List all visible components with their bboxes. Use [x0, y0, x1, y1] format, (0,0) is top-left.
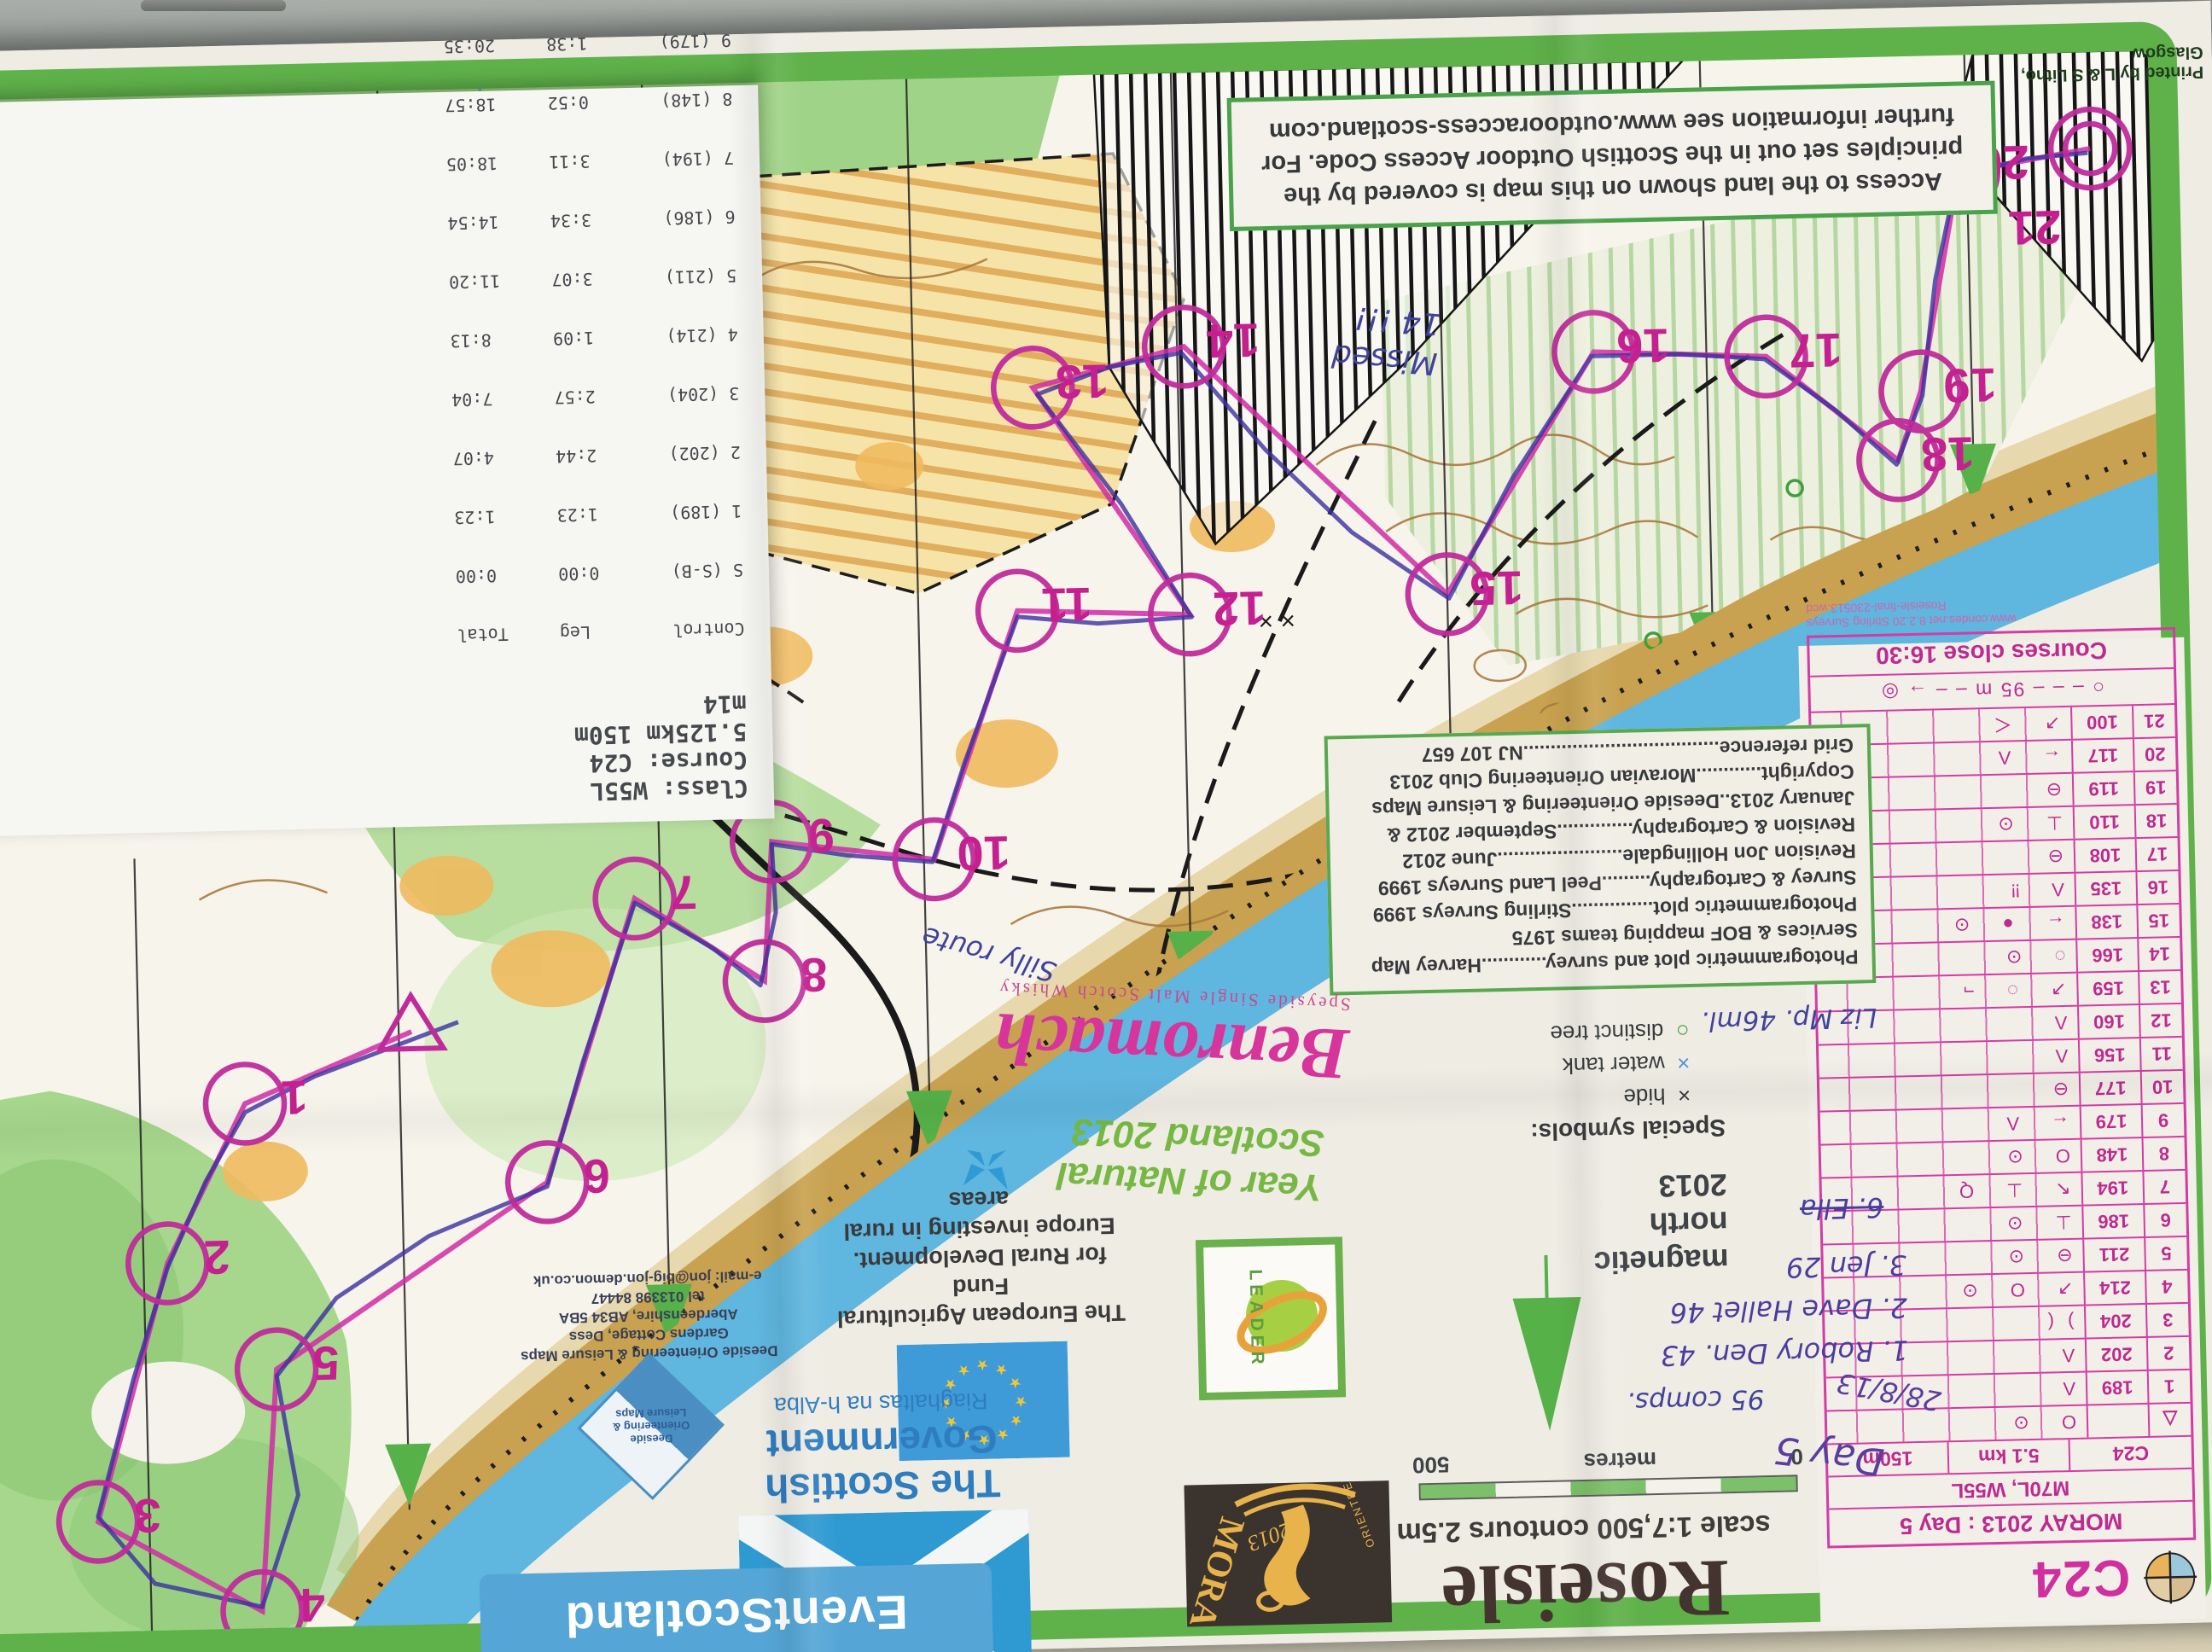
handwritten-ella-note: 6. Ella	[1696, 1179, 1884, 1228]
svg-text:10: 10	[957, 826, 1011, 881]
splits-row: 9 (179) 1:38 20:35	[0, 30, 731, 67]
splits-row: 8 (148) 0:52 18:57	[0, 89, 733, 125]
north-arrow-stem	[1544, 1255, 1548, 1300]
splits-row: 5 (211) 3:07 11:20	[0, 265, 736, 302]
svg-text:16: 16	[1615, 318, 1670, 373]
scale-units: metres	[1583, 1446, 1656, 1475]
hide-icon: ×	[1678, 1083, 1691, 1108]
svg-text:8: 8	[800, 948, 828, 1003]
splits-row: 3 (204) 2:57 7:04	[0, 383, 740, 420]
moray-2013-logo: MORAY 2013 ORIENTEERING	[1184, 1480, 1392, 1626]
results-header: Class: W55L Course: C24 5.125km 150m m14	[0, 689, 748, 819]
course-id: C24	[2070, 1437, 2192, 1470]
natural-scotland-logo: Year of Natural Scotland 2013	[963, 1056, 1328, 1210]
svg-text:1: 1	[281, 1071, 309, 1126]
legend-item: × hide	[1426, 1079, 1726, 1118]
eventscotland-logo: EventScotland	[480, 1563, 993, 1652]
moray-logo-graphic: MORAY 2013 ORIENTEERING	[1184, 1480, 1392, 1626]
eu-fund-line: The European Agricultural Fund	[827, 1269, 1135, 1334]
results-printout: Class: W55L Course: C24 5.125km 150m m14…	[0, 85, 775, 837]
svg-text:5: 5	[312, 1336, 341, 1391]
legend-title: Special symbols:	[1427, 1111, 1726, 1150]
deeside-maps-block: Deeside Orienteering & Leisure Maps Dees…	[510, 1226, 789, 1488]
splits-row: 10 (177) 0:53 21:28	[0, 0, 731, 8]
splits-row: 7 (194) 3:11 18:05	[0, 148, 734, 184]
svg-text:9: 9	[807, 809, 835, 864]
splits-row: 6 (186) 3:34 14:54	[0, 206, 736, 243]
water-tank-icon: ×	[1677, 1050, 1691, 1076]
leader-wordmark: LEADER	[1245, 1269, 1268, 1369]
access-code-box: Access to the land shown on this map is …	[1227, 81, 1998, 231]
svg-text:21: 21	[2007, 201, 2062, 255]
splits-row: S (S-B) 0:00 0:00	[0, 560, 743, 596]
legend-item: × water tank	[1425, 1046, 1725, 1085]
moravian-club-logo-icon	[2144, 1550, 2197, 1604]
svg-text:3: 3	[134, 1489, 162, 1544]
course-length: 5.1 km	[1949, 1440, 2071, 1473]
handwritten-missed-note: Missed 14 !!!	[1240, 247, 1446, 382]
moray-wordmark: MORAY	[1184, 1513, 1251, 1627]
deeside-diamond-text: Deeside Orienteering & Leisure Maps	[601, 1406, 701, 1447]
svg-text:2: 2	[203, 1230, 231, 1285]
start-symbol: △	[2148, 1404, 2192, 1436]
svg-text:15: 15	[1470, 561, 1524, 615]
map-title: Roseisle	[1336, 1544, 1833, 1637]
map-scale-line: scale 1:7,500 contours 2.5m	[1336, 1507, 1831, 1550]
svg-text:18: 18	[1920, 427, 1975, 481]
svg-text:6: 6	[583, 1149, 611, 1204]
map-sheet: × ×	[0, 1, 2212, 1652]
course-code: C24	[2030, 1549, 2131, 1610]
svg-text:7: 7	[670, 865, 698, 920]
svg-text:17: 17	[1789, 323, 1843, 378]
map-credits-box: Photogrammetric plot and survey.........…	[1324, 724, 1877, 995]
photo-of-map: × ×	[0, 0, 2212, 1652]
splits-row: 1 (189) 1:23 1:23	[0, 501, 742, 538]
svg-text:★: ★	[975, 1356, 989, 1373]
svg-text:19: 19	[1943, 358, 1998, 413]
splits-row: 4 (214) 1:09 8:13	[0, 324, 738, 361]
svg-text:4: 4	[298, 1578, 326, 1632]
leader-logo-graphic	[1227, 1245, 1333, 1393]
leader-logo: LEADER	[1196, 1236, 1346, 1400]
splits-header: Control Leg Total	[0, 619, 745, 655]
eventscotland-wordmark: EventScotland	[564, 1585, 908, 1648]
svg-text:★: ★	[957, 1361, 970, 1378]
printer-credit: Printed by L & S Litho, Glasgow	[1990, 50, 2204, 86]
deeside-contact: Deeside Orienteering & Leisure Maps Gard…	[511, 1265, 786, 1365]
splits-table: Control Leg Total S (S-B) 0:00 0:00 1 (1…	[0, 0, 746, 695]
scale-max: 500	[1412, 1451, 1450, 1479]
butterfly-icon	[958, 1143, 1015, 1196]
svg-text:11: 11	[1041, 578, 1093, 632]
svg-text:★: ★	[994, 1360, 1008, 1377]
splits-row: 2 (202) 2:44 4:07	[0, 442, 741, 479]
deeside-diamond-logo: Deeside Orienteering & Leisure Maps	[577, 1353, 724, 1500]
map-title-block: Roseisle scale 1:7,500 contours 2.5m	[1336, 1498, 1833, 1637]
svg-text:12: 12	[1212, 581, 1266, 636]
handwritten-liz-note: Liz Mp. 46ml.	[1611, 981, 1877, 1038]
svg-text:13: 13	[1055, 354, 1109, 409]
